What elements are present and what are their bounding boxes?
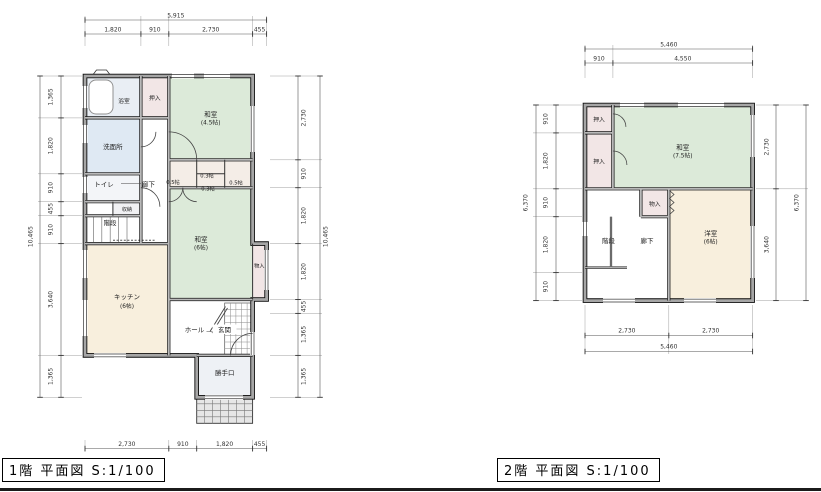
f1-dim-right-3: 1,820 <box>301 263 308 280</box>
floor2-plan: 押入 押入 和室 (7.5帖) 物入 洋室 (6帖) 階段 廊下 <box>523 42 809 355</box>
f1-senmenjo-label: 洗面所 <box>103 142 123 151</box>
f2-dim-total-height-left: 6,370 <box>523 194 530 211</box>
f1-rouka-label: 廊下 <box>142 180 156 189</box>
f1-dim-right-1: 910 <box>301 168 308 180</box>
f1-dim-left-3: 455 <box>48 203 55 215</box>
f1-washitsu6-size: (6帖) <box>194 244 208 252</box>
f1-dim-total-height-left: 10,465 <box>28 226 35 247</box>
f1-katteguchi-label: 勝手口 <box>215 368 235 377</box>
f1-porch-tile <box>197 397 253 423</box>
f2-dim-total-width: 5,460 <box>660 42 677 49</box>
f1-closet-a-label: 0.5帖 <box>166 178 179 186</box>
f2-dim-left-0: 910 <box>543 113 550 125</box>
f1-washitsu45-size: (4.5帖) <box>201 119 221 127</box>
f1-kitchen-label: キッチン <box>114 293 140 301</box>
f2-dim-bottom-1: 2,730 <box>702 328 719 335</box>
f1-dim-top-0: 1,820 <box>104 27 121 34</box>
f2-dim-left-1: 1,820 <box>543 152 550 169</box>
f2-dim-left-4: 910 <box>543 281 550 293</box>
floor-plan-sheet: 浴室 押入 和室 (4.5帖) 洗面所 トイレ 廊下 0.5帖 0.3帖 0.3… <box>0 0 821 492</box>
floor1-plan: 浴室 押入 和室 (4.5帖) 洗面所 トイレ 廊下 0.5帖 0.3帖 0.3… <box>28 13 330 453</box>
f1-dim-bottom-3: 455 <box>254 441 266 448</box>
f1-monoire-label: 物入 <box>254 262 264 270</box>
f2-dim-left-2: 910 <box>543 197 550 209</box>
f1-dim-left-2: 910 <box>48 182 55 194</box>
f1-toilet-label: トイレ <box>94 181 114 189</box>
f1-dim-right-6: 1,365 <box>301 368 308 385</box>
f1-kitchen-size: (6帖) <box>120 302 134 310</box>
f1-washitsu6-room <box>169 188 253 300</box>
f1-dim-right-2: 1,820 <box>301 207 308 224</box>
f1-dim-right-5: 1,365 <box>301 326 308 343</box>
f1-dim-right-4: 455 <box>301 300 308 312</box>
f1-dim-bottom-0: 2,730 <box>118 441 135 448</box>
f1-bath-label: 浴室 <box>118 97 130 105</box>
f2-dim-top-0: 910 <box>593 56 605 63</box>
f1-closet-d-label: 0.5帖 <box>229 179 242 187</box>
f2-washitsu75-size: (7.5帖) <box>673 152 693 160</box>
f1-dim-left-5: 3,640 <box>48 291 55 308</box>
f2-oshiire-a-label: 押入 <box>593 116 605 124</box>
bathtub <box>89 80 113 114</box>
f2-washitsu75-label: 和室 <box>676 143 690 152</box>
f2-dim-left-3: 1,820 <box>543 236 550 253</box>
f2-dim-right-1: 3,640 <box>764 236 771 253</box>
f1-closet-b-label: 0.3帖 <box>200 172 213 180</box>
f1-dim-left-1: 1,820 <box>48 137 55 154</box>
f1-washitsu45-label: 和室 <box>204 110 218 119</box>
f2-dim-top-1: 4,550 <box>674 56 691 63</box>
floor2-title: 2階 平面図 S:1/100 <box>497 458 660 482</box>
f1-washitsu6-label: 和室 <box>195 235 209 244</box>
f1-genkan-label: 玄関 <box>218 325 231 334</box>
f2-youshitsu-size: (6帖) <box>704 238 718 246</box>
plan-drawing: 浴室 押入 和室 (4.5帖) 洗面所 トイレ 廊下 0.5帖 0.3帖 0.3… <box>0 0 821 492</box>
f1-dim-left-6: 1,365 <box>48 368 55 385</box>
f2-dim-total-width-bottom: 5,460 <box>660 344 677 351</box>
f1-oshiire-label: 押入 <box>149 94 161 102</box>
f1-closet-c-label: 0.3帖 <box>201 185 214 193</box>
f1-dim-top-3: 455 <box>254 27 266 34</box>
f1-dim-right-0: 2,730 <box>301 109 308 126</box>
f2-dim-bottom-0: 2,730 <box>618 328 635 335</box>
sheet-bottom-border <box>0 488 821 491</box>
f1-dim-total-height-right: 10,465 <box>323 226 330 247</box>
f1-hall-label: ホール <box>185 326 205 334</box>
f1-dim-total-width: 5,915 <box>167 13 184 20</box>
f2-dim-total-height-right: 6,370 <box>794 194 801 211</box>
f2-oshiire-b-label: 押入 <box>593 158 605 166</box>
floor1-title: 1階 平面図 S:1/100 <box>2 458 165 482</box>
f2-kaidan-label: 階段 <box>602 236 616 245</box>
f1-shunou-label: 収納 <box>122 205 132 213</box>
f2-dim-right-0: 2,730 <box>764 138 771 155</box>
f2-rouka-label: 廊下 <box>641 236 655 245</box>
f1-dim-bottom-1: 910 <box>177 441 189 448</box>
f1-dim-bottom-2: 1,820 <box>216 441 233 448</box>
f1-kaidan-label: 階段 <box>104 218 118 227</box>
f2-monoire-label: 物入 <box>649 200 661 208</box>
f1-dim-top-2: 2,730 <box>202 27 219 34</box>
f1-dim-left-4: 910 <box>48 224 55 236</box>
f1-dim-top-1: 910 <box>149 27 161 34</box>
f1-dim-left-0: 1,365 <box>48 88 55 105</box>
f2-youshitsu-label: 洋室 <box>704 229 718 238</box>
